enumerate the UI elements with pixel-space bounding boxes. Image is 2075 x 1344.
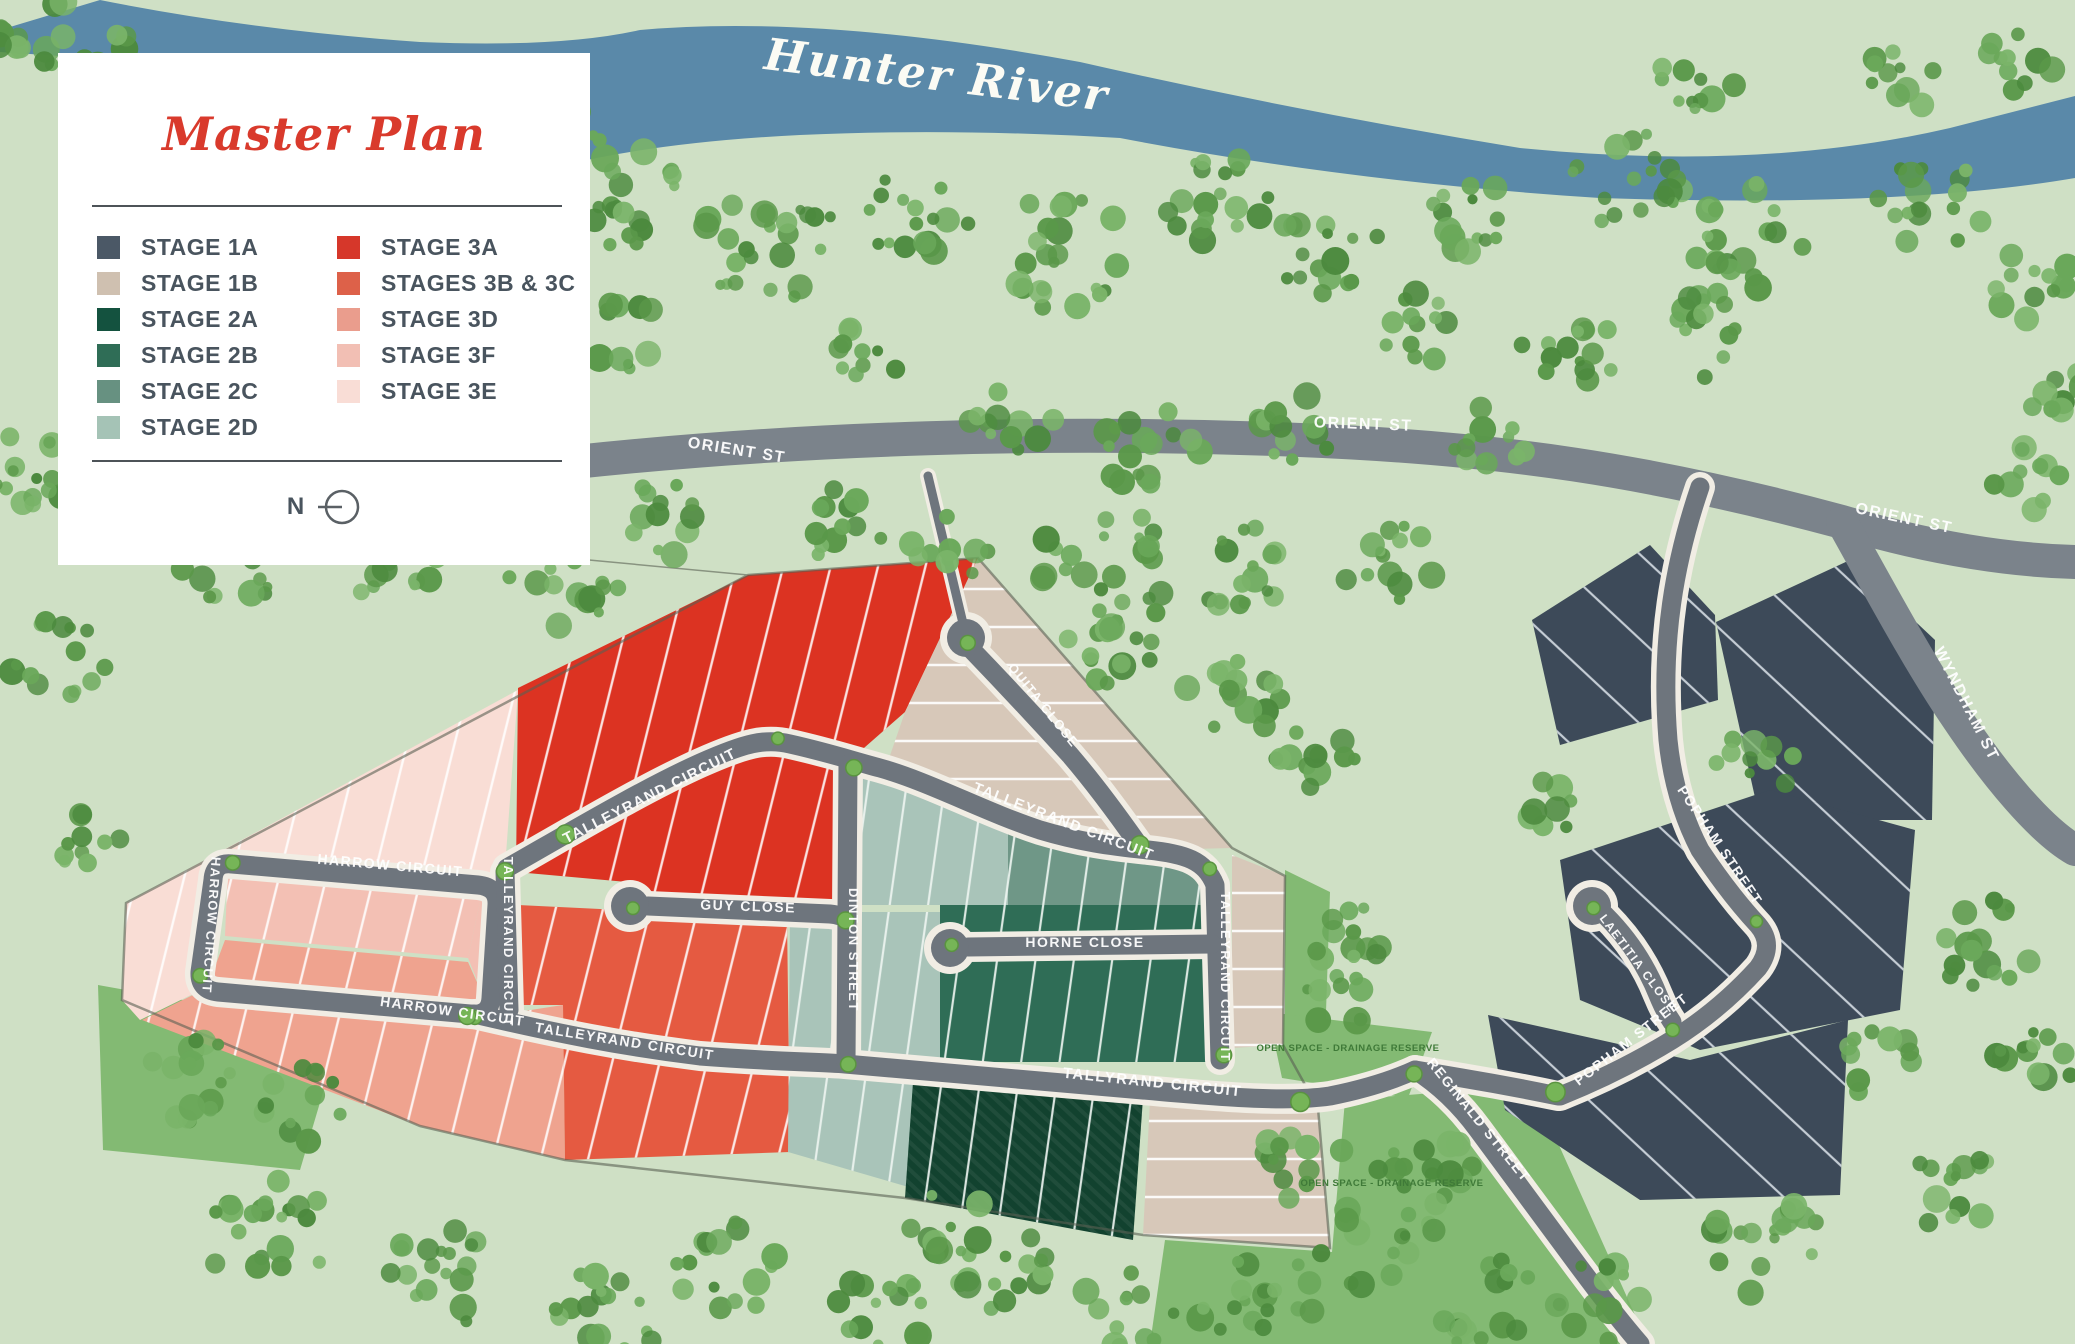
legend-item: STAGE 3E: [337, 373, 575, 409]
north-indicator: N: [58, 485, 590, 529]
north-label: N: [287, 493, 305, 521]
legend-item: STAGE 2C: [97, 373, 337, 409]
stage-swatch: [97, 308, 120, 331]
park-label: OPEN SPACE - DRAINAGE RESERVE: [1300, 1178, 1483, 1189]
compass-icon: [315, 485, 361, 529]
legend-item: STAGE 2D: [97, 409, 337, 445]
road-label: ORIENT ST: [1313, 414, 1412, 434]
stage-swatch: [337, 272, 360, 295]
road-label: TALLEYRAND CIRCUIT: [1218, 892, 1233, 1062]
stage-swatch: [337, 380, 360, 403]
road-label: GUY CLOSE: [700, 896, 796, 915]
stage-label: STAGE 2D: [141, 414, 258, 441]
stage-label: STAGE 3F: [381, 342, 496, 369]
stage-label: STAGE 3A: [381, 234, 498, 261]
stage-label: STAGE 3D: [381, 306, 498, 333]
stage-label: STAGE 1A: [141, 234, 258, 261]
road-label: DINTON STREET: [846, 888, 861, 1012]
stage-swatch: [97, 236, 120, 259]
stage-swatch: [337, 344, 360, 367]
legend-panel: Master Plan STAGE 1ASTAGE 1BSTAGE 2ASTAG…: [58, 53, 590, 565]
legend-item: STAGE 2B: [97, 337, 337, 373]
legend-title: Master Plan: [58, 107, 590, 161]
legend-item: STAGE 3F: [337, 337, 575, 373]
legend-item: STAGES 3B & 3C: [337, 265, 575, 301]
legend-item: STAGE 1B: [97, 265, 337, 301]
road-label: TALLEYRAND CIRCUIT: [501, 857, 516, 1027]
legend-items: STAGE 1ASTAGE 1BSTAGE 2ASTAGE 2BSTAGE 2C…: [97, 229, 580, 445]
park-label: OPEN SPACE - DRAINAGE RESERVE: [1256, 1043, 1439, 1054]
stage-swatch: [337, 236, 360, 259]
legend-item: STAGE 1A: [97, 229, 337, 265]
stage-swatch: [97, 380, 120, 403]
stage-label: STAGE 3E: [381, 378, 497, 405]
legend-divider-bottom: [92, 460, 562, 462]
stage-label: STAGE 2A: [141, 306, 258, 333]
masterplan-page: ORIENT STORIENT STORIENT STWYNDHAM STTAL…: [0, 0, 2075, 1344]
legend-item: STAGE 3D: [337, 301, 575, 337]
stage-swatch: [97, 416, 120, 439]
stage-label: STAGE 1B: [141, 270, 258, 297]
stage-label: STAGES 3B & 3C: [381, 270, 575, 297]
legend-item: STAGE 2A: [97, 301, 337, 337]
stage-swatch: [337, 308, 360, 331]
stage-label: STAGE 2B: [141, 342, 258, 369]
stage-swatch: [97, 272, 120, 295]
road-label: HORNE CLOSE: [1025, 934, 1144, 950]
stage-label: STAGE 2C: [141, 378, 258, 405]
stage-swatch: [97, 344, 120, 367]
legend-divider-top: [92, 205, 562, 207]
legend-item: STAGE 3A: [337, 229, 575, 265]
